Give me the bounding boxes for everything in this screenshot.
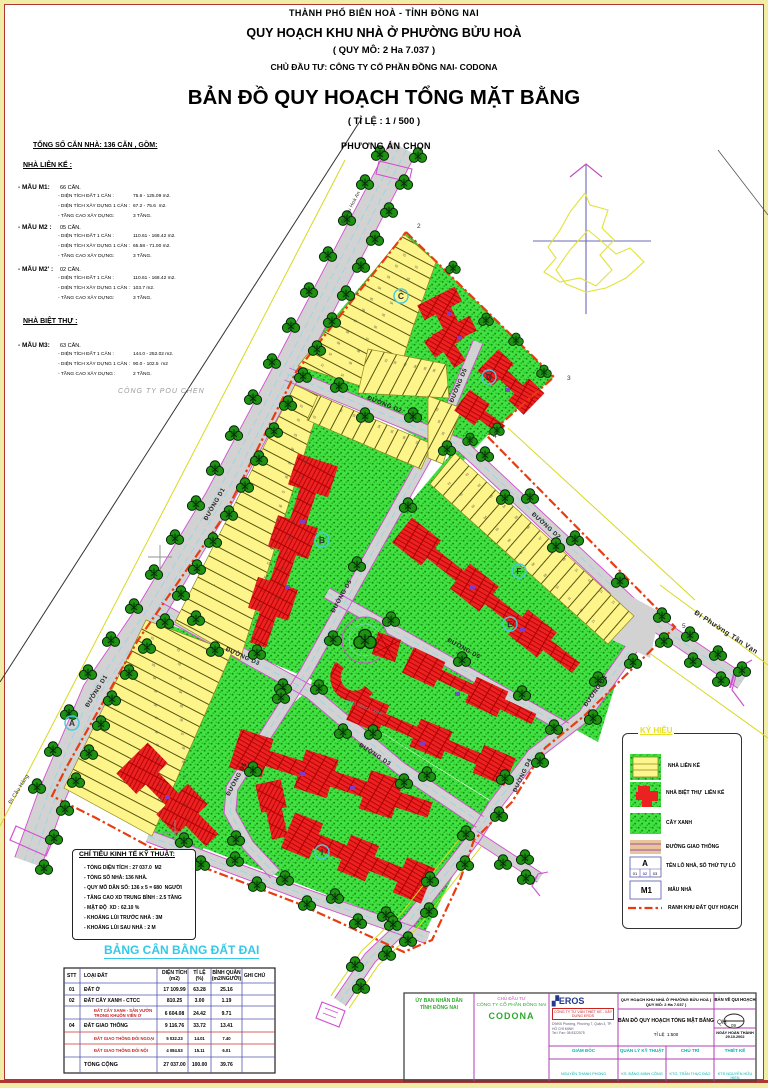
svg-text:09: 09	[731, 1023, 737, 1028]
